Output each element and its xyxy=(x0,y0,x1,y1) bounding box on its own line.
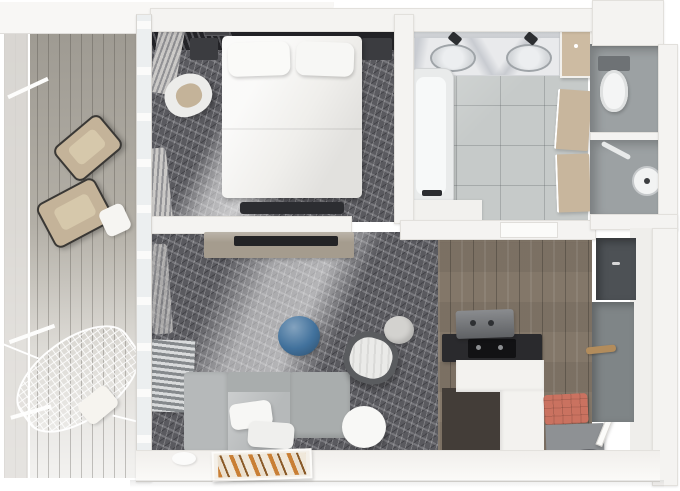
blue-pouf xyxy=(278,316,320,356)
toilet-bowl xyxy=(600,70,628,112)
cooktop xyxy=(468,339,516,358)
hall-dark-cabinet xyxy=(596,238,636,300)
top-exterior-wall xyxy=(150,8,594,32)
kitchen-base-cabinet xyxy=(442,388,500,458)
sofa-back xyxy=(228,372,292,394)
floorplan-render xyxy=(0,0,680,491)
sink-right xyxy=(506,44,552,72)
entry-coral-bench xyxy=(543,393,589,425)
left-window-wall xyxy=(136,14,152,482)
bathroom-door-threshold xyxy=(500,222,558,238)
bed-pillow-left xyxy=(227,41,290,77)
shower-drain xyxy=(644,178,650,184)
bed-pillow-right xyxy=(295,41,354,77)
wall-artwork-print xyxy=(218,452,307,477)
bathtub-basin xyxy=(416,77,446,195)
bedroom-bathroom-wall xyxy=(394,14,414,224)
tub-faucet xyxy=(422,190,442,196)
storage-door-handle xyxy=(574,44,578,48)
nightstand-right xyxy=(362,38,392,60)
cooktop-knob xyxy=(498,345,503,350)
small-stool xyxy=(384,316,414,344)
shower-door-lower xyxy=(555,153,591,212)
right-exterior-wall-upper xyxy=(658,44,678,230)
bed-foot-bench xyxy=(240,202,344,214)
coffee-machine-button xyxy=(488,320,494,326)
cooktop-knob xyxy=(476,345,481,350)
toilet-tank xyxy=(598,56,630,71)
sofa-arm-left xyxy=(184,372,230,452)
duvet-fold xyxy=(222,128,362,130)
coat-hook xyxy=(612,262,620,265)
floor-dish xyxy=(172,452,196,465)
top-right-exterior-corner xyxy=(592,0,664,46)
ground-shadow xyxy=(130,480,664,488)
nightstand-left xyxy=(190,38,218,60)
bathroom-bottom-wall xyxy=(400,220,596,240)
coffee-machine xyxy=(456,309,515,339)
entry-wardrobe xyxy=(592,302,634,422)
sofa-chaise xyxy=(290,372,350,438)
shower-door-upper xyxy=(554,89,592,151)
sofa-pillow-2 xyxy=(247,420,295,449)
coffee-table xyxy=(342,406,386,448)
coffee-machine-button xyxy=(470,320,476,326)
tv xyxy=(234,236,338,246)
kitchen-peninsula-top xyxy=(456,360,544,392)
right-exterior-wall-lower xyxy=(652,228,678,486)
